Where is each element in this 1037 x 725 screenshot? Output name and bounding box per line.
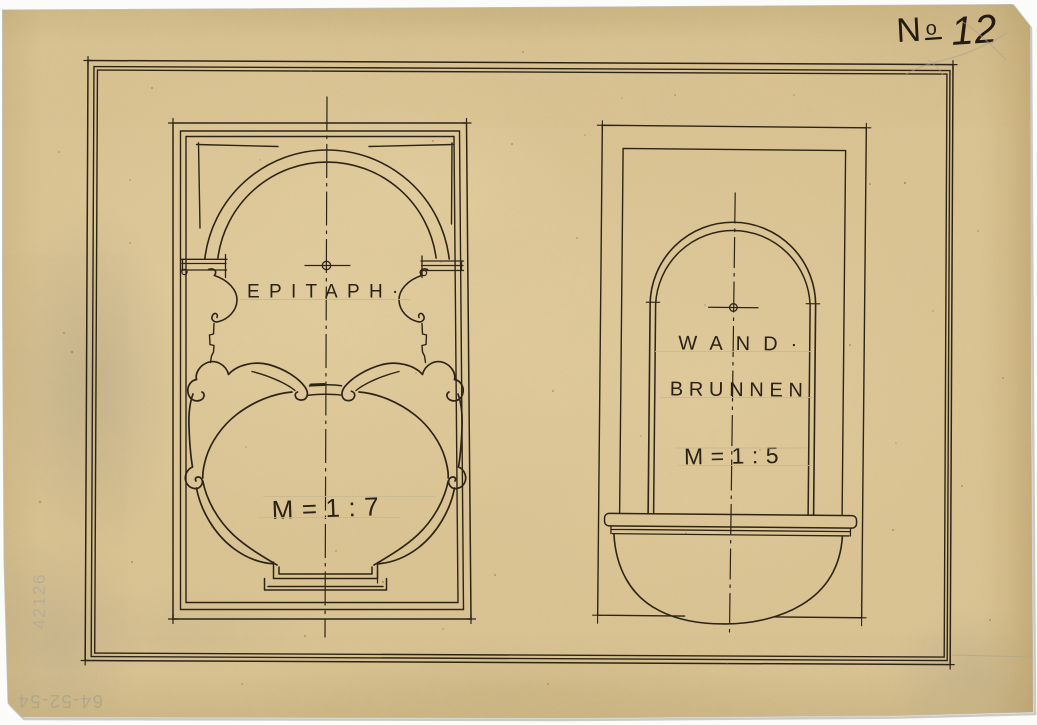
svg-text:N: N	[895, 11, 922, 50]
svg-text:42126: 42126	[29, 573, 49, 629]
svg-text:BRUNNEN: BRUNNEN	[670, 378, 809, 401]
svg-text:o: o	[925, 17, 937, 40]
svg-text:64-52-54: 64-52-54	[17, 691, 103, 712]
svg-text:WAND·: WAND·	[678, 332, 810, 355]
